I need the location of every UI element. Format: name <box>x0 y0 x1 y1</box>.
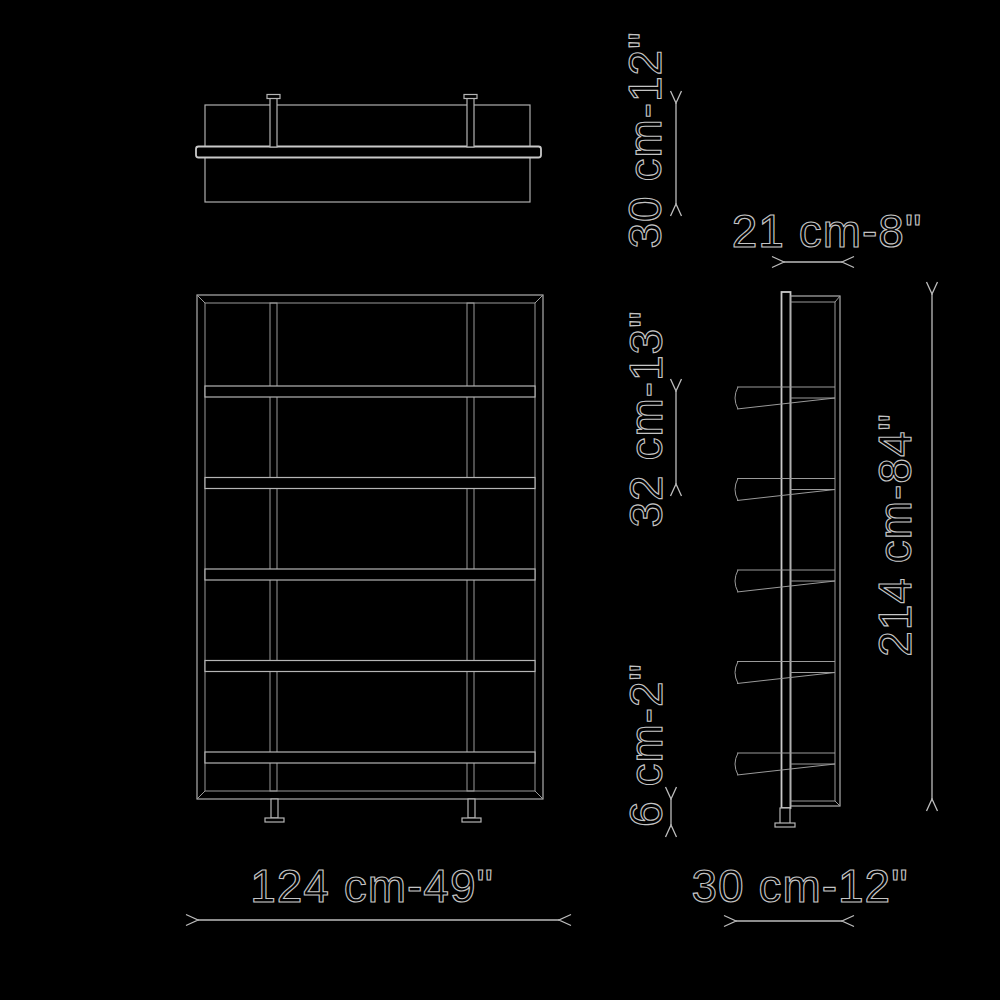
dimension-side-depth: 30 cm-12" <box>691 860 908 921</box>
dimension-drawing-canvas: 30 cm-12" 21 cm-8" 32 cm-13" 6 cm-2" 214… <box>0 0 1000 1000</box>
foot-base <box>265 818 284 822</box>
front-shelf-band <box>205 478 535 489</box>
front-shelf-band <box>205 661 535 672</box>
dimension-label: 30 cm-12" <box>619 31 671 248</box>
dimension-label: 32 cm-13" <box>620 310 672 527</box>
foot-stem <box>271 799 278 818</box>
bookcase-technical-drawing: 30 cm-12" 21 cm-8" 32 cm-13" 6 cm-2" 214… <box>0 0 1000 1000</box>
dimension-upper-depth: 21 cm-8" <box>732 205 923 262</box>
bracket-post <box>467 98 474 147</box>
dimension-label: 21 cm-8" <box>732 205 923 257</box>
front-shelf-band <box>205 752 535 763</box>
bracket-cap <box>267 95 280 99</box>
foot-base <box>462 818 481 822</box>
bracket-post <box>270 98 277 147</box>
dimension-label: 124 cm-49" <box>250 860 494 912</box>
top-view-back-beam <box>196 147 541 158</box>
dimension-shelf-spacing: 32 cm-13" <box>620 310 676 527</box>
foot-stem <box>468 799 475 818</box>
dimension-label: 30 cm-12" <box>691 860 908 912</box>
dimension-top-depth: 30 cm-12" <box>619 31 676 248</box>
foot-base <box>775 823 795 827</box>
dimension-plinth-height: 6 cm-2" <box>620 663 672 827</box>
front-shelf-band <box>205 386 535 397</box>
bracket-cap <box>464 95 477 99</box>
dimension-label: 6 cm-2" <box>620 663 672 827</box>
side-back-upright <box>782 292 791 808</box>
front-shelf-band <box>205 569 535 580</box>
foot-stem <box>780 808 790 824</box>
dimension-label: 214 cm-84" <box>869 413 921 657</box>
